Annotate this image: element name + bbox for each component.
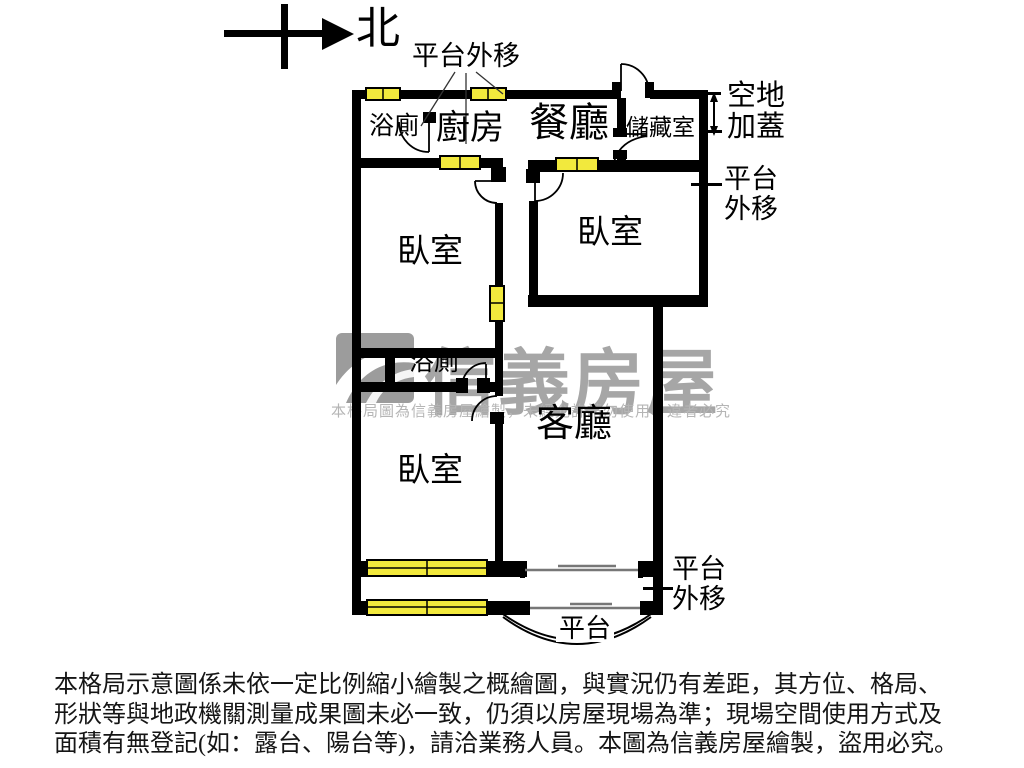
disclaimer-line-2: 形狀等與地政機關測量成果圖未必一致，仍須以房屋現場為準；現場空間使用方式及 <box>54 701 958 731</box>
annotation-platform-moved-right: 平台 外移 <box>724 164 778 224</box>
disclaimer-line-3: 面積有無登記(如：露台、陽台等)，請洽業務人員。本圖為信義房屋繪製，盜用必究。 <box>54 730 958 760</box>
annotation-platform-bottom-line1: 平台 <box>672 554 726 584</box>
north-arrow <box>224 4 354 69</box>
annotation-platform-right-line1: 平台 <box>724 164 778 194</box>
room-label-bedroom-right: 臥室 <box>577 216 643 251</box>
room-label-bedroom-middle: 臥室 <box>397 235 463 270</box>
room-label-bath-middle: 浴廁 <box>409 350 459 376</box>
annotation-platform-moved-bottom-right: 平台 外移 <box>672 554 726 614</box>
room-label-storage: 儲藏室 <box>626 116 695 140</box>
sliding-openings <box>524 566 642 608</box>
floor-plan-canvas: 信義房屋 本格局圖為信義房屋繪製，未經允許請勿使用，違者必究 <box>0 0 1024 768</box>
annotation-open-land-line1: 空地 <box>727 81 785 112</box>
room-label-bedroom-bottom: 臥室 <box>397 454 463 489</box>
annotation-open-land-line2: 加蓋 <box>727 112 785 143</box>
disclaimer-line-1: 本格局示意圖係未依一定比例縮小繪製之概繪圖，與實況仍有差距，其方位、格局、 <box>54 671 958 701</box>
annotation-open-land-addition: 空地 加蓋 <box>727 81 785 143</box>
room-label-dining: 餐廳 <box>529 102 609 144</box>
entrance-door-arc <box>621 64 649 92</box>
annotation-platform-curve: 平台 <box>556 615 614 642</box>
walls <box>352 90 708 615</box>
annotation-platform-moved-top: 平台外移 <box>412 42 520 70</box>
bedroom-middle-door-arc <box>475 181 497 203</box>
annotation-platform-bottom-line2: 外移 <box>672 584 726 614</box>
north-label: 北 <box>356 6 400 52</box>
floor-plan-drawing <box>0 0 1024 768</box>
annotation-platform-right-line2: 外移 <box>724 194 778 224</box>
room-label-living: 客廳 <box>536 405 612 445</box>
room-label-kitchen: 廚房 <box>436 111 504 147</box>
disclaimer: 本格局示意圖係未依一定比例縮小繪製之概繪圖，與實況仍有差距，其方位、格局、 形狀… <box>54 671 958 760</box>
room-label-bath-top: 浴廁 <box>369 114 419 140</box>
